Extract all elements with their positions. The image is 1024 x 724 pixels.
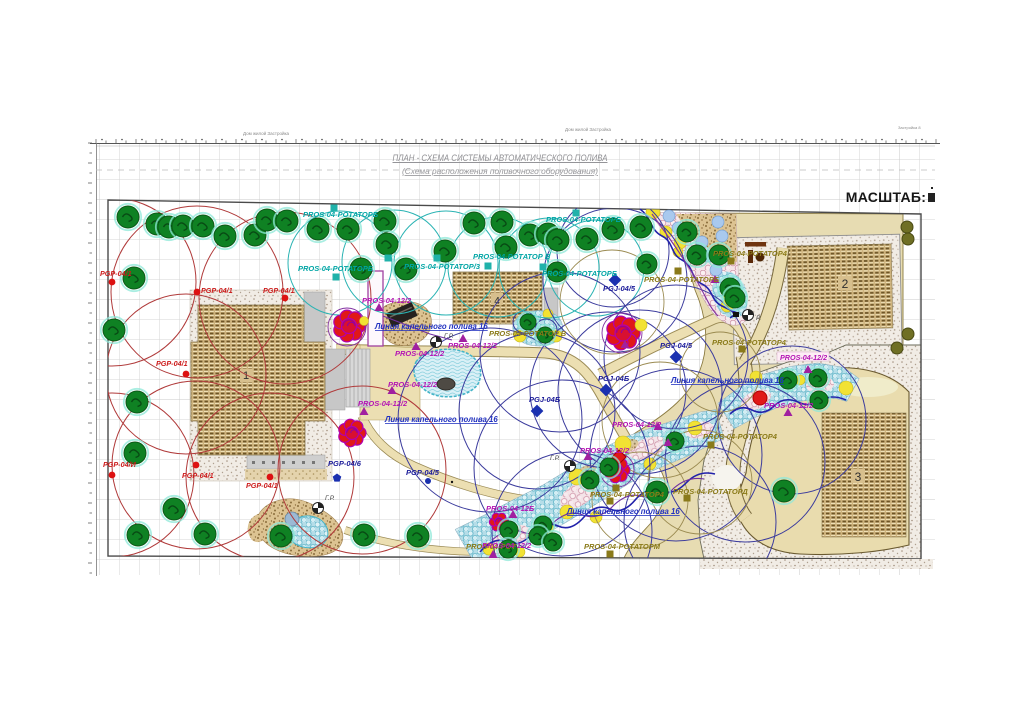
svg-text:PGP-04/1: PGP-04/1 <box>182 471 214 480</box>
svg-text:Линия капельного полива 16: Линия капельного полива 16 <box>374 322 488 331</box>
svg-text:PROS-04-РОТАТОР В: PROS-04-РОТАТОР В <box>473 252 551 261</box>
svg-text:PGP-04/И: PGP-04/И <box>103 460 137 469</box>
svg-text:Линия капельного полива 16: Линия капельного полива 16 <box>384 415 498 424</box>
svg-text:PGJ-04/5: PGJ-04/5 <box>603 284 636 293</box>
svg-text:Застройка 8: Застройка 8 <box>898 125 921 130</box>
svg-text:PGP-04/6: PGP-04/6 <box>328 459 362 468</box>
svg-text:PROS-04-12/2: PROS-04-12/2 <box>395 349 445 358</box>
svg-text:PGP-04/1: PGP-04/1 <box>100 269 132 278</box>
svg-text:PROS-04-РОТАТОРБ: PROS-04-РОТАТОРБ <box>644 275 720 284</box>
svg-text:PROS-04-12/2: PROS-04-12/2 <box>612 420 662 429</box>
svg-text:PGP-04/1: PGP-04/1 <box>246 481 278 490</box>
svg-text:Г.Р.: Г.Р. <box>550 455 560 462</box>
svg-text:PGP-04/1: PGP-04/1 <box>201 286 233 295</box>
svg-text:PROS-04-РОТАТОР4: PROS-04-РОТАТОР4 <box>713 249 788 258</box>
svg-text:Г.Р.: Г.Р. <box>444 333 454 340</box>
svg-text:Линия капельного полива 16: Линия капельного полива 16 <box>566 507 680 516</box>
svg-text:PROS-04-12/2: PROS-04-12/2 <box>764 401 814 410</box>
svg-text:PGP-04/1: PGP-04/1 <box>263 286 295 295</box>
svg-text:PROS-04-РОТАТОРБ: PROS-04-РОТАТОРБ <box>542 269 618 278</box>
svg-text:Р.: Р. <box>756 315 761 322</box>
svg-text:3: 3 <box>855 470 862 484</box>
svg-text:Линия капельного полива 16: Линия капельного полива 16 <box>670 376 784 385</box>
svg-text:PROS-04-РОТАТОР4: PROS-04-РОТАТОР4 <box>703 432 778 441</box>
svg-text:PROS-04-РОТАТОРМ: PROS-04-РОТАТОРМ <box>584 542 661 551</box>
svg-text:PROS-04-12/2: PROS-04-12/2 <box>780 353 827 362</box>
svg-text:(Схема расположения поливочног: (Схема расположения поливочного оборудов… <box>402 166 598 176</box>
svg-text:2: 2 <box>842 277 849 291</box>
svg-text:PROS-04-12/2: PROS-04-12/2 <box>362 296 412 305</box>
svg-text:Дом жилой Застройка: Дом жилой Застройка <box>243 130 290 136</box>
svg-text:PROS-04-РОТАТОР4: PROS-04-РОТАТОР4 <box>712 338 787 347</box>
svg-text:PROS-04-12/2: PROS-04-12/2 <box>358 399 408 408</box>
svg-text:PROS-04-РОТАТОР4: PROS-04-РОТАТОР4 <box>590 490 665 499</box>
svg-text:PROS-04-12Б: PROS-04-12Б <box>486 504 535 513</box>
svg-text:PGP-04/5: PGP-04/5 <box>406 468 440 477</box>
svg-text:PROS-04-РОТАТОРБ: PROS-04-РОТАТОРБ <box>303 210 379 219</box>
svg-text:PROS-04-РОТАТОР/3: PROS-04-РОТАТОР/3 <box>404 262 481 271</box>
svg-text:PGJ-04/5: PGJ-04/5 <box>660 341 693 350</box>
svg-text:PROS-04-РОТАТОР В: PROS-04-РОТАТОР В <box>489 329 567 338</box>
svg-text:PROS-04-12/2: PROS-04-12/2 <box>580 446 630 455</box>
svg-text:МАСШТАБ:: МАСШТАБ: <box>846 189 927 205</box>
svg-text:PROS-04-РОТАТОРД: PROS-04-РОТАТОРД <box>673 487 748 496</box>
svg-text:PGJ-04Б: PGJ-04Б <box>529 395 561 404</box>
svg-text:PROS-04-12/2: PROS-04-12/2 <box>482 541 532 550</box>
svg-text:PGJ-04Б: PGJ-04Б <box>598 374 630 383</box>
svg-text:PROS-04-РОТАТОРБ: PROS-04-РОТАТОРБ <box>546 215 622 224</box>
svg-text:ПЛАН - СХЕМА СИСТЕМЫ АВТОМАТИЧ: ПЛАН - СХЕМА СИСТЕМЫ АВТОМАТИЧЕСКОГО ПОЛ… <box>393 153 608 164</box>
svg-text:PROS-04-РОТАТОРБ: PROS-04-РОТАТОРБ <box>298 264 374 273</box>
svg-text:Дом жилой Застройка: Дом жилой Застройка <box>565 126 612 132</box>
svg-text:PGP-04/1: PGP-04/1 <box>156 359 188 368</box>
svg-text:Г.Р.: Г.Р. <box>325 495 335 502</box>
svg-text:PROS-04-12/2: PROS-04-12/2 <box>448 341 498 350</box>
svg-text:PROS-04-12/2: PROS-04-12/2 <box>388 380 438 389</box>
